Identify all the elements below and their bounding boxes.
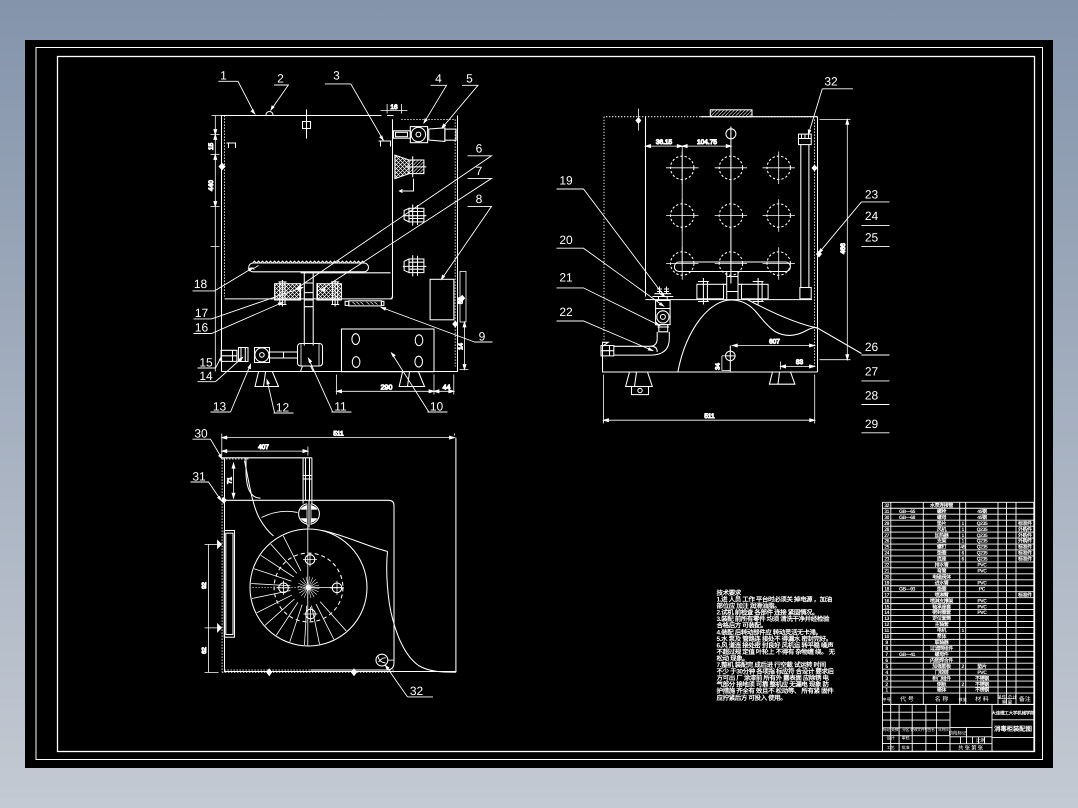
svg-text:批准: 批准	[902, 745, 910, 750]
svg-text:24: 24	[865, 209, 879, 223]
svg-text:34: 34	[715, 363, 722, 370]
svg-text:轴承座套: 轴承座套	[932, 603, 952, 610]
svg-text:11: 11	[334, 400, 347, 414]
svg-text:32: 32	[410, 684, 424, 698]
svg-text:消毒柜装配图: 消毒柜装配图	[994, 725, 1033, 733]
svg-text:GB—41: GB—41	[899, 652, 916, 658]
svg-text:62: 62	[201, 647, 208, 654]
svg-text:内胆焊合件: 内胆焊合件	[930, 657, 953, 664]
svg-text:外购件: 外购件	[1017, 532, 1032, 539]
svg-text:27: 27	[865, 365, 879, 379]
svg-text:14: 14	[458, 343, 465, 350]
svg-text:螺栓: 螺栓	[937, 508, 948, 515]
svg-text:阶段标记: 阶段标记	[949, 730, 967, 735]
svg-text:4: 4	[435, 72, 442, 86]
svg-text:71: 71	[227, 477, 234, 484]
svg-text:407: 407	[258, 444, 269, 451]
svg-text:标准件: 标准件	[1017, 556, 1032, 563]
svg-text:数量: 数量	[959, 697, 967, 702]
svg-text:31: 31	[192, 470, 206, 484]
svg-text:过滤网组件: 过滤网组件	[930, 645, 953, 652]
svg-text:螺钉: 螺钉	[937, 544, 947, 551]
svg-text:511: 511	[333, 431, 344, 438]
svg-text:13: 13	[213, 400, 227, 414]
svg-text:侧板: 侧板	[937, 681, 948, 688]
svg-text:83: 83	[796, 359, 804, 366]
svg-text:29: 29	[865, 417, 879, 431]
svg-text:21: 21	[559, 271, 573, 285]
svg-text:290: 290	[381, 385, 393, 392]
svg-text:水泵连接管: 水泵连接管	[929, 502, 953, 509]
svg-text:2: 2	[277, 72, 284, 86]
svg-text:10: 10	[430, 400, 444, 414]
svg-text:加强筋板: 加强筋板	[931, 663, 952, 670]
svg-text:密封圈套: 密封圈套	[931, 609, 952, 616]
svg-text:柜门组件: 柜门组件	[931, 675, 951, 682]
svg-text:6: 6	[476, 142, 483, 156]
svg-text:511: 511	[704, 413, 715, 420]
svg-text:序号: 序号	[882, 697, 890, 702]
svg-text:44: 44	[443, 385, 451, 392]
svg-text:标准件: 标准件	[1017, 520, 1032, 527]
svg-text:32: 32	[824, 75, 838, 89]
svg-text:18: 18	[194, 277, 208, 291]
svg-text:20: 20	[559, 233, 573, 247]
svg-text:45钢: 45钢	[977, 514, 987, 521]
svg-text:19: 19	[559, 174, 573, 188]
svg-text:12: 12	[276, 401, 290, 415]
svg-text:垫片: 垫片	[937, 520, 947, 527]
svg-text:92: 92	[201, 582, 208, 589]
svg-text:进水管: 进水管	[935, 579, 949, 586]
svg-text:标准件: 标准件	[1017, 591, 1032, 598]
svg-text:PVC: PVC	[977, 610, 987, 616]
svg-text:1: 1	[220, 69, 227, 83]
svg-text:不锈钢: 不锈钢	[975, 675, 989, 682]
svg-text:垫圈: 垫圈	[937, 550, 947, 557]
svg-text:8: 8	[476, 192, 483, 206]
svg-text:重 量: 重 量	[1002, 699, 1013, 704]
svg-text:名 称: 名 称	[935, 695, 949, 703]
svg-text:不锈钢: 不锈钢	[975, 687, 989, 694]
svg-text:共 张 第 张: 共 张 第 张	[958, 744, 983, 751]
svg-text:应拧紧后方 可投入 使用。: 应拧紧后方 可投入 使用。	[717, 694, 787, 702]
svg-text:25: 25	[865, 231, 879, 245]
svg-text:排水管: 排水管	[935, 562, 949, 569]
svg-text:泵体: 泵体	[937, 633, 948, 640]
svg-text:喷淋臂: 喷淋臂	[935, 591, 949, 598]
svg-text:大连理工大学机械学院: 大连理工大学机械学院	[991, 710, 1035, 716]
svg-text:分区: 分区	[902, 727, 909, 732]
svg-text:标记: 标记	[883, 727, 890, 732]
svg-text:门铰链: 门铰链	[935, 669, 950, 676]
svg-text:26: 26	[865, 340, 879, 354]
svg-text:定位套筒: 定位套筒	[932, 615, 951, 622]
svg-text:材 料: 材 料	[975, 695, 989, 703]
svg-text:处数: 处数	[891, 727, 898, 732]
svg-text:螺母件: 螺母件	[935, 651, 949, 658]
svg-text:更改文件号: 更改文件号	[910, 727, 928, 732]
svg-text:底座: 底座	[937, 556, 947, 563]
svg-text:17: 17	[195, 306, 209, 320]
svg-text:备注: 备注	[1019, 695, 1031, 703]
svg-text:联轴器: 联轴器	[935, 639, 950, 646]
svg-text:审核: 审核	[902, 735, 911, 740]
svg-text:30: 30	[194, 427, 208, 441]
svg-text:年月日: 年月日	[938, 727, 949, 732]
svg-text:比例: 比例	[976, 738, 985, 743]
svg-text:标准件: 标准件	[1017, 550, 1032, 557]
svg-text:垫片: 垫片	[977, 663, 987, 670]
svg-text:5: 5	[466, 72, 473, 86]
svg-text:箱体: 箱体	[937, 687, 948, 694]
svg-text:16: 16	[390, 104, 398, 111]
svg-text:外购件: 外购件	[1017, 538, 1032, 545]
svg-text:3: 3	[333, 69, 340, 83]
svg-text:电磁阀体: 电磁阀体	[932, 573, 952, 580]
svg-text:电机: 电机	[937, 627, 947, 634]
svg-text:外购件: 外购件	[1017, 526, 1032, 533]
svg-text:22: 22	[559, 305, 573, 319]
svg-text:607: 607	[769, 339, 780, 346]
svg-text:15: 15	[208, 143, 215, 151]
svg-text:440: 440	[208, 180, 215, 191]
svg-text:设计: 设计	[887, 735, 896, 740]
svg-text:GB—68: GB—68	[899, 515, 916, 521]
svg-text:9: 9	[479, 330, 486, 344]
svg-text:代 号: 代 号	[900, 696, 914, 703]
svg-text:标准件: 标准件	[1017, 544, 1032, 551]
svg-text:PVC: PVC	[977, 569, 987, 575]
svg-text:15: 15	[199, 356, 213, 370]
svg-text:45钢: 45钢	[977, 508, 987, 515]
svg-text:23: 23	[865, 188, 879, 202]
svg-text:PC: PC	[979, 586, 986, 592]
svg-text:GB—93: GB—93	[899, 586, 916, 592]
svg-text:支架: 支架	[936, 538, 947, 545]
svg-text:加热器: 加热器	[934, 532, 950, 539]
svg-text:螺母: 螺母	[937, 514, 947, 521]
svg-text:垫圈: 垫圈	[937, 585, 947, 592]
svg-text:弯管: 弯管	[937, 568, 947, 575]
svg-text:16: 16	[195, 321, 209, 335]
svg-text:104.75: 104.75	[697, 139, 717, 146]
svg-text:主轴套: 主轴套	[935, 621, 950, 628]
svg-text:风机: 风机	[937, 526, 947, 533]
svg-text:466: 466	[840, 243, 847, 254]
svg-text:50: 50	[458, 297, 465, 304]
svg-text:喷淋支撑架: 喷淋支撑架	[930, 597, 953, 604]
svg-text:7: 7	[476, 164, 483, 178]
svg-text:36.15: 36.15	[656, 139, 673, 146]
svg-text:28: 28	[865, 389, 879, 403]
svg-text:签名: 签名	[928, 727, 935, 732]
svg-text:不锈钢: 不锈钢	[975, 681, 989, 688]
svg-text:工艺: 工艺	[887, 745, 895, 750]
svg-text:14: 14	[199, 369, 213, 383]
